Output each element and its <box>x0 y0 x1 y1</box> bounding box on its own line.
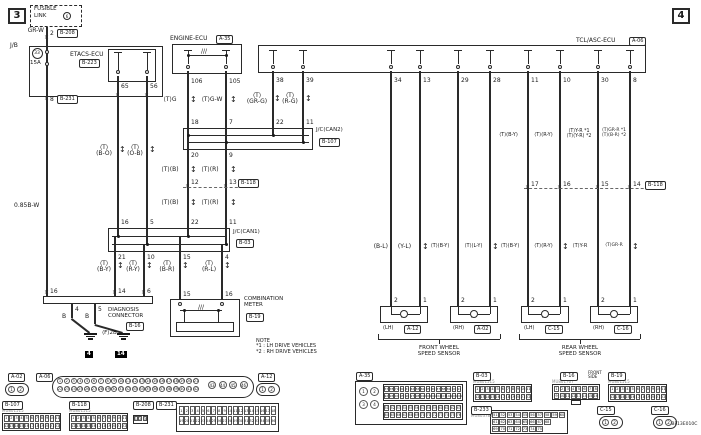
connector-part-code: MU801515 <box>69 409 91 413</box>
connector-id: C-15 <box>597 406 615 415</box>
connector-pin: 5 <box>576 386 581 392</box>
connector-id: B-16 <box>560 372 578 381</box>
pin-number: 29 <box>461 78 469 84</box>
connector-pin: 22 <box>57 386 63 392</box>
connector-pin: 92 <box>384 393 389 399</box>
connector-pin: 53 <box>507 412 514 418</box>
connector-id: A-12 <box>258 373 275 382</box>
connector-id: A-35 <box>216 35 233 44</box>
junction-mark: × <box>557 185 562 191</box>
wire-horizontal <box>187 135 309 136</box>
wire-vertical <box>489 71 491 307</box>
connector-id: B-233 <box>471 406 492 415</box>
connector-id: B-16 <box>126 322 144 331</box>
wire-color: ⟨T⟩ (O-B) <box>123 145 147 158</box>
connector-pin: 9 <box>651 386 656 393</box>
wire-vertical <box>46 27 48 296</box>
side-label: (RH) <box>593 326 604 331</box>
wire-color: 0.85B-W <box>14 203 39 209</box>
connector-pin: 24 <box>71 386 77 392</box>
connector-pin: 3 <box>81 415 86 422</box>
connector-pin: 2 <box>138 416 142 421</box>
pin-number: 13 <box>423 78 431 84</box>
junction-mark: × <box>44 290 49 296</box>
connector-pin: 15 <box>255 406 260 415</box>
wire-vertical <box>580 339 581 344</box>
connector-pin: 5 <box>201 406 206 415</box>
pin-number: 39 <box>306 78 314 84</box>
pin-number: 13 <box>229 180 237 186</box>
connector-pin: 46 <box>240 381 248 389</box>
connector-pin: 52 <box>499 412 506 418</box>
connector-pin: 68 <box>408 412 413 418</box>
wire-vertical <box>218 310 219 322</box>
connector-pin: 54 <box>514 412 521 418</box>
connector-pin: 19 <box>511 394 516 401</box>
connector-pin: 20 <box>184 416 189 425</box>
connector-pin: 26 <box>217 416 222 425</box>
connector-pin: 1 <box>259 386 266 393</box>
wire-color: ⟨T⟩GR-R *1 ⟨T⟩(B-R) *2 <box>599 129 629 139</box>
connector-pin: 1 <box>57 378 63 384</box>
wire-color: ⟨T⟩(B-Y) <box>494 244 526 249</box>
connector-pin: 14 <box>81 423 86 430</box>
connector-pin: 33 <box>132 386 138 392</box>
wire-horizontal <box>184 50 192 51</box>
connector-pin: 4 <box>370 400 379 409</box>
connector-pin: 98 <box>415 393 420 399</box>
connector-pin: 57 <box>420 405 425 411</box>
wire-vertical <box>71 304 73 318</box>
fusible-link-label: LINK <box>34 14 46 20</box>
pin-number: 2 <box>601 298 605 304</box>
connector-pin: 1 <box>610 386 615 393</box>
wire-vertical <box>117 76 119 236</box>
terminal-circle <box>224 65 228 69</box>
pin-number: 2 <box>461 298 465 304</box>
wire-color: ⟨T⟩(R-Y) <box>529 133 558 138</box>
connector-pin: 2 <box>480 386 485 393</box>
connector-pin: 23 <box>201 416 206 425</box>
connector-pin: 7 <box>211 406 216 415</box>
connector-id: B-231 <box>156 401 177 410</box>
terminal-circle <box>178 302 182 306</box>
pin-number: 17 <box>531 182 539 188</box>
connector-pin: 2 <box>76 415 81 422</box>
connector-pin: 17 <box>265 406 270 415</box>
connector-pin: 69 <box>492 426 499 432</box>
connector-pin: 4 <box>195 406 200 415</box>
connector-pin: 1 <box>8 386 15 393</box>
wire-color: B <box>62 314 66 320</box>
wire-horizontal <box>299 50 307 51</box>
connector-pin: 60 <box>438 405 443 411</box>
connector-pin: 19 <box>179 416 184 425</box>
pin-number: 7 <box>229 120 233 126</box>
wire-vertical <box>146 76 148 244</box>
junction-mark: × <box>115 93 120 99</box>
wire-vertical <box>118 52 119 70</box>
connector-pin: 4 <box>19 415 24 422</box>
terminal-circle <box>456 65 460 69</box>
connector-pin: 1 <box>602 419 609 426</box>
connector-pin: 21 <box>193 378 199 384</box>
connector-pin: 2 <box>370 387 379 396</box>
wire-vertical <box>303 50 304 64</box>
connector-pin: 18 <box>271 406 276 415</box>
connector-pin: 16 <box>495 394 500 401</box>
wire-vertical <box>490 50 491 64</box>
jc-can1-box <box>108 228 230 252</box>
connector-pin: 64 <box>514 419 521 425</box>
twist-arrow: ↕ <box>230 166 237 175</box>
connector-pin: 5 <box>495 386 500 393</box>
wire-color: ⟨T⟩(R) <box>196 167 224 173</box>
connector-pin: 6 <box>30 415 35 422</box>
wire-vertical <box>302 71 304 142</box>
wire-color: (Y-L) <box>391 244 418 250</box>
connector-pin: 106 <box>457 393 462 399</box>
fuse-number: 33 <box>32 48 43 59</box>
connector-pin: 19 <box>107 423 112 430</box>
connector-pin: 31 <box>244 416 249 425</box>
twist-arrow: ↕ <box>190 199 197 208</box>
connector-pin: 81 <box>405 386 410 392</box>
connector-pin: 15 <box>86 423 91 430</box>
terminal-circle <box>596 65 600 69</box>
connector-pin: 15 <box>588 393 593 399</box>
pin-number: 56 <box>150 84 158 90</box>
connector-pin: 68 <box>544 419 551 425</box>
twist-arrow: ↕ <box>305 95 312 104</box>
connector-pin: 21 <box>190 416 195 425</box>
sensor-symbol <box>400 310 408 318</box>
junction-dot <box>225 54 228 57</box>
wire-color: ⟨T⟩ (B-Y) <box>92 261 116 274</box>
connector-pin: 3 <box>359 400 368 409</box>
connector-pin: 90 <box>452 386 457 392</box>
connector-id: B-107 <box>2 401 23 410</box>
component-name: ETACS-ECU <box>70 52 104 58</box>
junction-mark: × <box>595 185 600 191</box>
connector-pin: 76 <box>456 412 461 418</box>
connector-id: A-02 <box>8 373 25 382</box>
wire-color: ⟨T⟩G <box>156 97 184 103</box>
connector-pin: 12 <box>238 406 243 415</box>
twist-arrow: ↕ <box>224 262 231 271</box>
connector-id: B-19 <box>246 313 264 322</box>
pin-number: 5 <box>150 220 154 226</box>
resistor-mark: /// <box>198 49 210 55</box>
connector-pin: 70 <box>499 426 506 432</box>
wire-vertical <box>458 50 459 64</box>
connector-pin: 51 <box>384 405 389 411</box>
wire-horizontal <box>408 314 420 315</box>
junction-dot <box>217 309 220 312</box>
connector-pin: 94 <box>394 393 399 399</box>
connector-pin: 20 <box>112 423 117 430</box>
connector-pin: 17 <box>501 394 506 401</box>
component-name: DIAGNOSIS CONNECTOR <box>108 308 143 320</box>
connector-pin: 63 <box>456 405 461 411</box>
connector-pin: 6 <box>97 415 102 422</box>
terminal-circle <box>271 65 275 69</box>
wire-color: ⟨T⟩(L-Y) <box>459 244 488 249</box>
pin-number: 106 <box>191 79 202 85</box>
connector-pin: 11 <box>125 378 131 384</box>
connector-pin: 7 <box>641 386 646 393</box>
connector-pin: 42 <box>193 386 199 392</box>
connector-part-code: MU803782 <box>471 414 493 418</box>
junction-dot <box>225 243 228 246</box>
wire-horizontal <box>416 50 424 51</box>
terminal-circle <box>220 302 224 306</box>
wire-horizontal <box>549 314 560 315</box>
pin-number: 12 <box>191 180 199 186</box>
ground-id: 14 <box>115 351 127 358</box>
connector-pin: 95 <box>400 393 405 399</box>
component-name: J/C(CAN1) <box>233 230 260 236</box>
connector-pin: 6 <box>582 386 587 392</box>
connector-pin: 16 <box>593 393 598 399</box>
wire-color: ⟨T⟩(R) <box>196 200 224 206</box>
pin-number: 20 <box>191 153 199 159</box>
connector-pin: 36 <box>271 416 276 425</box>
connector-pin: 22 <box>122 423 127 430</box>
connector-pin: 12 <box>71 423 76 430</box>
connector-pin: 13 <box>244 406 249 415</box>
twist-arrow: ↕ <box>230 199 237 208</box>
connector-id: B-223 <box>79 59 100 68</box>
connector-pin: 3 <box>143 416 147 421</box>
junction-mark: × <box>44 35 49 41</box>
connector-pin: 16 <box>24 423 29 430</box>
connector-pin: 16 <box>630 394 635 401</box>
junction-dot <box>117 235 120 238</box>
connector-pin: 3 <box>485 386 490 393</box>
wire-color: ⟨F⟩2B <box>102 331 117 337</box>
pin-number: 15 <box>183 292 191 298</box>
junction-dot <box>272 134 275 137</box>
connector-pin: 18 <box>173 378 179 384</box>
pin-number: 28 <box>493 78 501 84</box>
connector-pin: 23 <box>64 386 70 392</box>
connector-pin: 8 <box>105 378 111 384</box>
connector-id: A-02 <box>474 325 491 334</box>
connector-pin: 58 <box>426 405 431 411</box>
connector-pin: 85 <box>426 386 431 392</box>
pin-number: 2 <box>531 298 535 304</box>
side-label: (LH) <box>524 326 534 331</box>
connector-pin: 27 <box>91 386 97 392</box>
connector-pin: 54 <box>402 405 407 411</box>
connector-pin: 10 <box>560 393 565 399</box>
connector-id: B-118 <box>238 179 259 188</box>
connector-pin: 10 <box>50 415 55 422</box>
connector-pin: 82 <box>410 386 415 392</box>
component-name: COMBINATION METER <box>244 297 283 309</box>
connector-pin: 14 <box>582 393 587 399</box>
connector-pin: 83 <box>415 386 420 392</box>
wire-color: ⟨T⟩(B) <box>156 167 184 173</box>
ground-bar <box>119 336 128 338</box>
connector-pin: 5 <box>630 386 635 393</box>
junction-mark: × <box>112 290 117 296</box>
connector-pin: 38 <box>166 386 172 392</box>
connector-part-code: MU801767 <box>552 380 574 384</box>
connector-pin: 18 <box>641 394 646 401</box>
junction-dot <box>302 141 305 144</box>
wire-horizontal <box>556 50 564 51</box>
sensor-symbol <box>610 310 618 318</box>
wire-color: ⟨T⟩(B-Y) <box>491 133 526 138</box>
connector-pin: 16 <box>260 406 265 415</box>
wire-vertical <box>226 50 227 64</box>
connector-pin: 62 <box>499 419 506 425</box>
wire-color: ⟨T⟩G-W <box>196 97 228 103</box>
connector-pin: 62 <box>450 405 455 411</box>
wire-horizontal <box>524 50 532 51</box>
connector-pin: 2 <box>17 386 24 393</box>
connector-pin: 67 <box>536 419 543 425</box>
wire-vertical <box>630 50 631 64</box>
component-name: J/C(CAN2) <box>316 128 343 134</box>
connector-pin: 5 <box>24 415 29 422</box>
connector-pin: 8 <box>511 386 516 393</box>
connector-pin: 3 <box>190 406 195 415</box>
junction-dot <box>225 141 228 144</box>
connector-pin: 21 <box>656 394 661 401</box>
connector-pin: 4 <box>86 415 91 422</box>
connector-pin: 43 <box>208 381 216 389</box>
connector-id: A-06 <box>629 37 646 46</box>
connector-pin: 59 <box>551 412 558 418</box>
connector-pin: 71 <box>426 412 431 418</box>
connector-pin: 2 <box>560 386 565 392</box>
connector-pin: 1 <box>179 406 184 415</box>
connector-id: C-16 <box>651 406 669 415</box>
connector-pin: 35 <box>265 416 270 425</box>
twist-arrow: ↕ <box>149 146 156 155</box>
wiring-diagram-page: ×××××××××××××63334FUSIBLELINKGR-W2J/B15A… <box>0 0 701 435</box>
connector-pin: 6 <box>206 406 211 415</box>
ground-id: 4 <box>85 351 93 358</box>
wire-color: ⟨T⟩ (R-G) <box>278 93 302 106</box>
connector-id: B-118 <box>645 181 666 190</box>
connector-pin: 80 <box>400 386 405 392</box>
connector-pin: 4 <box>571 386 576 392</box>
connector-pin: 14 <box>14 423 19 430</box>
twist-arrow: ↕ <box>632 243 639 252</box>
sheet-number-left: 3 <box>8 11 26 22</box>
twist-arrow: ↕ <box>146 262 153 271</box>
connector-pin: 61 <box>444 405 449 411</box>
connector-pin: 17 <box>166 378 172 384</box>
pin-number: 14 <box>118 289 126 295</box>
junction-mark: × <box>144 93 149 99</box>
wire-color: ⟨T⟩ (GR-G) <box>244 93 270 106</box>
wire-horizontal <box>454 50 462 51</box>
connector-pin: 9 <box>45 415 50 422</box>
connector-pin: 2 <box>611 419 618 426</box>
connector-pin: 74 <box>444 412 449 418</box>
connector-id: B-118 <box>69 401 90 410</box>
wire-color: B <box>85 314 89 320</box>
connector-pin: 79 <box>394 386 399 392</box>
twist-arrow: ↕ <box>117 262 124 271</box>
pin-number: 22 <box>191 220 199 226</box>
terminal-circle <box>488 65 492 69</box>
connector-pin: 61 <box>492 419 499 425</box>
connector-pin: 9 <box>554 393 559 399</box>
twist-arrow: ↕ <box>182 262 189 271</box>
wire-horizontal <box>222 50 230 51</box>
wire-horizontal <box>269 50 277 51</box>
connector-pin: 97 <box>410 393 415 399</box>
fusible-link-number: 6 <box>63 12 71 20</box>
connector-pin: 63 <box>507 419 514 425</box>
terminal-circle <box>628 65 632 69</box>
connector-pin: 2 <box>9 415 14 422</box>
connector-pin: 18 <box>506 394 511 401</box>
wire-vertical <box>598 50 599 64</box>
wire-color: ⟨T⟩(B) <box>156 200 184 206</box>
connector-pin: 89 <box>446 386 451 392</box>
terminal-circle <box>558 65 562 69</box>
component-name: ENGINE-ECU <box>170 36 208 42</box>
wire-vertical <box>147 52 148 70</box>
connector-pin: 9 <box>516 386 521 393</box>
wire-horizontal <box>378 339 500 340</box>
connector-pin: 37 <box>159 386 165 392</box>
connector-pin: 12 <box>571 393 576 399</box>
connector-pin: 78 <box>389 386 394 392</box>
connector-pin: 9 <box>222 406 227 415</box>
wire-color: ⟨T⟩(R-Y) <box>529 244 558 249</box>
connector-id: C-16 <box>614 325 632 334</box>
connector-pin: 18 <box>102 423 107 430</box>
wire-color: ⟨T⟩ (B-O) <box>92 145 116 158</box>
wire-horizontal <box>618 314 630 315</box>
connector-pin: 58 <box>544 412 551 418</box>
wire-vertical <box>94 304 96 324</box>
connector-pin: 65 <box>390 412 395 418</box>
wire-horizontal <box>458 314 470 315</box>
connector-pin: 21 <box>117 423 122 430</box>
wire-horizontal <box>387 50 395 51</box>
wire-vertical <box>187 71 189 236</box>
connector-id: B-107 <box>319 138 340 147</box>
side-label: (RH) <box>453 326 464 331</box>
junction-mark: × <box>44 96 49 102</box>
connector-pin: 14 <box>249 406 254 415</box>
connector-pin: 52 <box>390 405 395 411</box>
pin-number: 2 <box>394 298 398 304</box>
pin-number: 8 <box>633 78 637 84</box>
connector-pin: 17 <box>97 423 102 430</box>
wire-vertical <box>390 71 392 307</box>
connector-pin: 75 <box>536 426 543 432</box>
ground-bar <box>117 333 130 335</box>
wire-color: ⟨T⟩ (R-L) <box>197 261 221 274</box>
connector-pin: 8 <box>646 386 651 393</box>
wire-vertical <box>188 50 189 64</box>
connector-part-code: MU801515 <box>2 409 24 413</box>
connector-pin: 2 <box>184 406 189 415</box>
sensor-symbol <box>541 310 549 318</box>
pin-number: 16 <box>50 289 58 295</box>
connector-pin: 34 <box>260 416 265 425</box>
